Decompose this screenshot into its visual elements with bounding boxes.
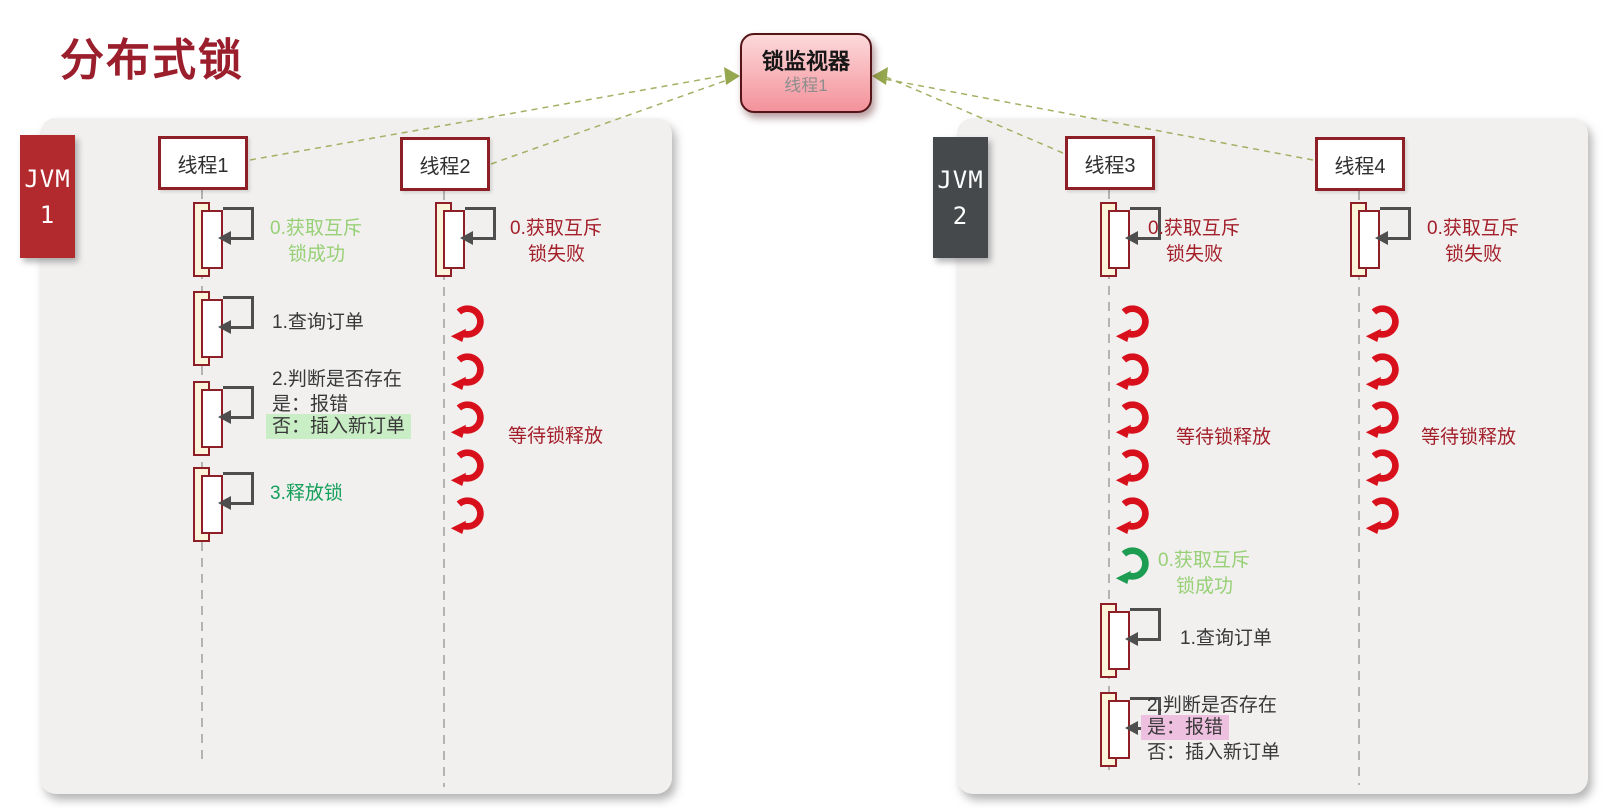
page-title: 分布式锁 xyxy=(60,24,244,88)
distributed-lock-diagram: 分布式锁 锁监视器 线程1 JVM 1 JVM 2 线程1 线程2 线程3 线程… xyxy=(0,0,1616,808)
t1-step1-label: 1.查询订单 xyxy=(272,312,364,333)
retry-arrow-icon xyxy=(448,494,486,536)
thread3-activation-step1 xyxy=(1100,603,1164,678)
retry-arrow-icon xyxy=(1113,494,1151,536)
t3-step0-line1: 0.获取互斥 xyxy=(1148,218,1240,239)
highlighted-text: 是：报错 xyxy=(1141,715,1229,740)
thread3-lifeline xyxy=(1108,190,1110,770)
t4-wait-label: 等待锁释放 xyxy=(1421,427,1516,448)
thread4-box: 线程4 xyxy=(1315,137,1405,191)
t3-step0-line2: 锁失败 xyxy=(1166,244,1223,265)
thread4-name: 线程4 xyxy=(1334,150,1385,179)
t2-step0-line2: 锁失败 xyxy=(528,244,585,265)
retry-arrow-icon xyxy=(448,398,486,440)
t1-step0-line2: 锁成功 xyxy=(288,244,345,265)
self-call-arrowhead-icon xyxy=(218,410,231,424)
thread4-lifeline xyxy=(1358,191,1360,785)
thread1-activation-step1 xyxy=(193,291,257,366)
self-call-arrowhead-icon xyxy=(1125,632,1138,646)
acquire-success-arrow-icon xyxy=(1113,544,1151,586)
thread3-name: 线程3 xyxy=(1084,149,1135,178)
retry-arrow-icon xyxy=(448,302,486,344)
retry-arrow-icon xyxy=(1113,446,1151,488)
retry-arrow-icon xyxy=(1113,302,1151,344)
t3-step1-label: 1.查询订单 xyxy=(1180,628,1272,649)
thread1-activation-step2 xyxy=(193,381,257,456)
jvm1-label: JVM 1 xyxy=(20,135,75,258)
self-call-arrowhead-icon xyxy=(1125,721,1138,735)
lock-monitor-box: 锁监视器 线程1 xyxy=(740,33,872,113)
self-call-arrowhead-icon xyxy=(1375,231,1388,245)
thread1-activation-step0 xyxy=(193,202,257,277)
highlighted-text: 否：插入新订单 xyxy=(266,414,411,439)
t3-step2-line2: 是：报错 xyxy=(1141,715,1229,740)
t3-wait-label: 等待锁释放 xyxy=(1176,427,1271,448)
retry-arrow-icon xyxy=(1363,494,1401,536)
self-call-arrowhead-icon xyxy=(1125,231,1138,245)
jvm1-label-line1: JVM xyxy=(24,161,70,197)
jvm2-label-line2: 2 xyxy=(953,198,968,234)
self-call-arrowhead-icon xyxy=(218,496,231,510)
connector-arrowhead-icon xyxy=(872,67,888,85)
t4-step0-line1: 0.获取互斥 xyxy=(1427,218,1519,239)
retry-arrow-icon xyxy=(1363,302,1401,344)
lock-monitor-owner: 线程1 xyxy=(784,75,827,97)
retry-arrow-icon xyxy=(1363,350,1401,392)
jvm2-label-line1: JVM xyxy=(937,162,983,198)
t3-step2-line3: 否：插入新订单 xyxy=(1147,742,1280,763)
thread2-activation-step0 xyxy=(435,202,499,277)
t1-step3-label: 3.释放锁 xyxy=(270,483,343,504)
self-call-arrowhead-icon xyxy=(218,231,231,245)
thread2-name: 线程2 xyxy=(419,150,470,179)
t2-wait-label: 等待锁释放 xyxy=(508,426,603,447)
t3-acquired-line2: 锁成功 xyxy=(1176,576,1233,597)
t2-step0-line1: 0.获取互斥 xyxy=(510,218,602,239)
self-call-arrowhead-icon xyxy=(218,320,231,334)
lock-monitor-title: 锁监视器 xyxy=(762,49,850,75)
t1-step2-line2: 是：报错 xyxy=(272,394,348,415)
t1-step2-line3: 否：插入新订单 xyxy=(266,414,411,439)
thread1-activation-step3 xyxy=(193,467,257,542)
jvm2-label: JVM 2 xyxy=(933,137,988,258)
jvm1-label-line2: 1 xyxy=(40,197,55,233)
thread1-box: 线程1 xyxy=(158,136,248,190)
thread2-box: 线程2 xyxy=(400,137,490,191)
t3-step2-line1: 2.判断是否存在 xyxy=(1147,695,1277,716)
t1-step2-line1: 2.判断是否存在 xyxy=(272,369,402,390)
t3-acquired-line1: 0.获取互斥 xyxy=(1158,550,1250,571)
self-call-arrowhead-icon xyxy=(460,231,473,245)
t1-step0-line1: 0.获取互斥 xyxy=(270,218,362,239)
thread4-activation-step0 xyxy=(1350,202,1414,277)
retry-arrow-icon xyxy=(1363,398,1401,440)
retry-arrow-icon xyxy=(448,446,486,488)
retry-arrow-icon xyxy=(1113,350,1151,392)
thread3-activation-step0 xyxy=(1100,202,1164,277)
retry-arrow-icon xyxy=(1113,398,1151,440)
thread2-lifeline xyxy=(443,191,445,787)
connector-arrowhead-icon xyxy=(724,67,740,85)
thread1-name: 线程1 xyxy=(177,149,228,178)
thread3-box: 线程3 xyxy=(1065,136,1155,190)
retry-arrow-icon xyxy=(1363,446,1401,488)
t4-step0-line2: 锁失败 xyxy=(1445,244,1502,265)
retry-arrow-icon xyxy=(448,350,486,392)
